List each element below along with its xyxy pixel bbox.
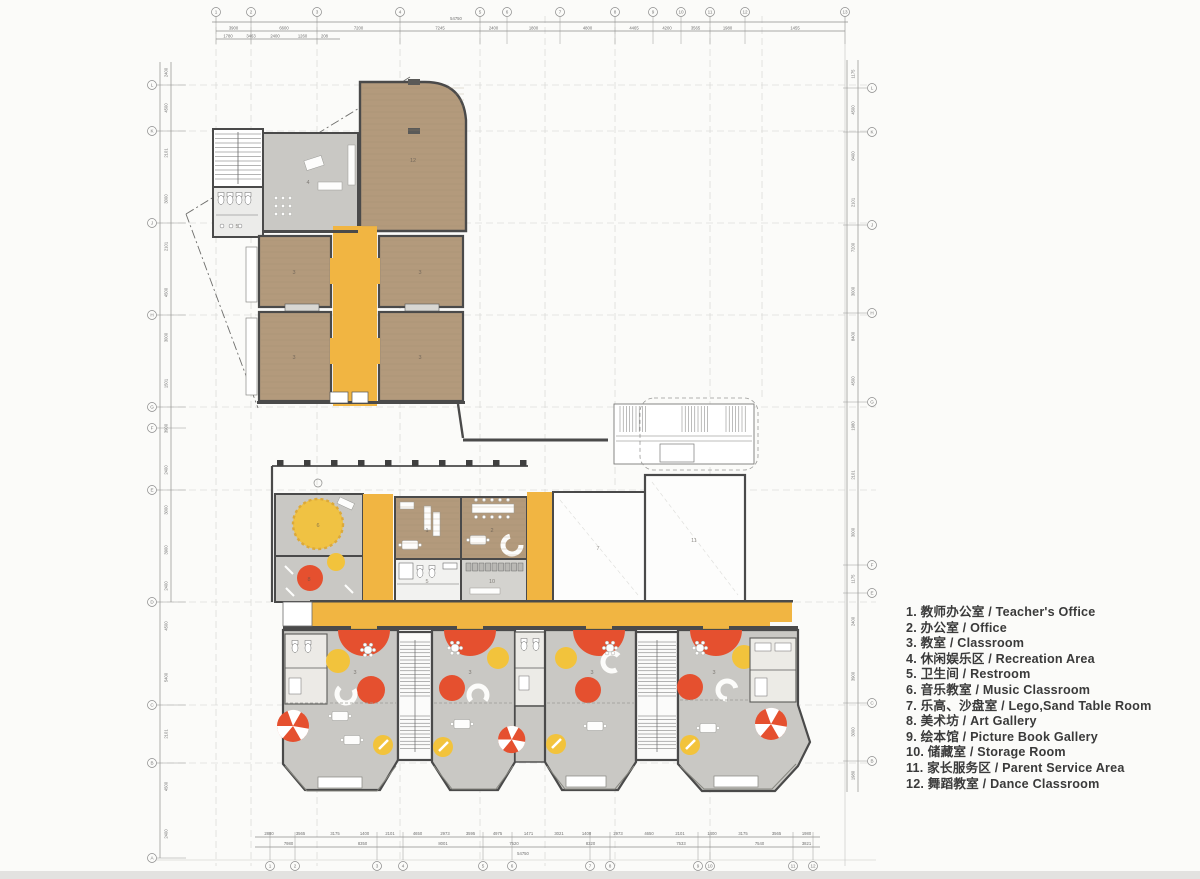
dimension-value: 2400 [270,34,280,39]
dimension-value: 1800 [529,26,539,31]
room-label: 6 [316,523,319,529]
dimension-value: 2400 [851,616,856,626]
dimension-value: 3021 [554,831,564,836]
stairwell-upper [213,129,263,187]
dimension-value: 8001 [438,841,448,846]
dimension-value: 2880 [264,831,274,836]
dimension-value: 2101 [164,148,169,158]
dimension-value: 3175 [330,831,340,836]
dimension-value: 4975 [493,831,503,836]
grid-bubble-label: 13 [842,10,848,15]
legend-item: 11. 家长服务区 / Parent Service Area [906,761,1192,777]
corridor-vertical-2 [527,492,553,602]
dimension-value: 4200 [662,26,672,31]
grid-bubble-label: 11 [708,10,713,15]
dimension-value: 1980 [723,26,733,31]
classroom-unit-d [677,630,810,791]
dimension-value: 8400 [851,331,856,341]
grid-bubble-label: 12 [742,10,748,15]
dimension-value: 1400 [707,831,717,836]
dimension-value: 2400 [164,67,169,77]
dimension-value: 1980 [802,831,812,836]
dimension-value: 2973 [440,831,450,836]
dimension-value: 1980 [851,421,856,431]
grid-bubble-label: 6 [511,864,514,869]
classroom-unit-c [545,630,636,790]
dimension-value: 3900 [164,423,169,433]
dimension-value: 2101 [851,197,856,207]
dimension-value: 1980 [851,770,856,780]
grid-bubble-label: 10 [678,10,684,15]
room-legend: 1. 教师办公室 / Teacher's Office2. 办公室 / Offi… [906,605,1192,792]
legend-item: 4. 休闲娱乐区 / Recreation Area [906,652,1192,668]
dimension-value: 4800 [583,26,593,31]
floor-plan-screenshot: 12 4 5 3 3 3 3 6 8 1 2 5 10 7 11 3 3 3 3… [0,0,1200,879]
grid-bubble-label: 1 [215,10,218,15]
room-label: 8 [307,577,310,583]
dimension-value: 3565 [296,831,306,836]
dimension-value: 1400 [582,831,592,836]
dimension-value: 1501 [164,378,169,388]
grid-bubble-label: 7 [559,10,562,15]
room-label: 1 [425,528,428,534]
legend-item: 9. 绘本馆 / Picture Book Gallery [906,730,1192,746]
dimension-value: 1471 [524,831,534,836]
grid-bubble-label: H [150,313,153,318]
room-label: 3 [292,270,295,276]
dimension-value: 54750 [450,16,462,21]
grid-bubble-label: G [870,400,874,405]
grid-bubble-label: 10 [707,864,713,869]
grid-bubble-label: G [150,405,154,410]
dimension-value: 3565 [691,26,701,31]
grid-bubble-label: J [151,221,153,226]
room-label: 3 [590,670,593,676]
grid-bubble-label: 1 [269,864,272,869]
dimension-value: 4500 [851,105,856,115]
grid-bubble-label: 9 [652,10,655,15]
dimension-value: 1400 [360,831,370,836]
office [461,497,527,559]
dimension-value: 3000 [851,286,856,296]
dimension-value: 1780 [223,34,233,39]
dimension-value: 7520 [509,841,519,846]
grid-bubble-label: F [871,563,874,568]
dimension-value: 2101 [164,729,169,739]
dimension-value: 4500 [851,376,856,386]
grid-bubble-label: 5 [479,10,482,15]
dimension-value: 2400 [489,26,499,31]
dimension-value: 3595 [466,831,476,836]
grid-bubble-label: 5 [482,864,485,869]
dimension-value: 2400 [164,465,169,475]
dimension-value: 7200 [354,26,364,31]
room-label: 5 [235,224,238,230]
room-label: 10 [489,579,495,585]
dimension-value: 4500 [164,287,169,297]
grid-bubble-label: B [150,761,153,766]
room-label: 2 [490,528,493,534]
grid-bubble-label: H [870,311,873,316]
room-label: 3 [353,670,356,676]
dimension-value: 3000 [851,727,856,737]
dimension-value: 3900 [229,26,239,31]
dimension-value: 3000 [164,505,169,515]
grid-bubble-label: L [151,83,154,88]
dimension-value: 3175 [738,831,748,836]
legend-item: 5. 卫生间 / Restroom [906,667,1192,683]
dimension-value: 3900 [851,671,856,681]
bottom-block [277,602,810,791]
dimension-value: 8400 [851,151,856,161]
entrance-stairs [614,398,758,470]
room-label: 4 [306,180,309,186]
grid-bubble-label: 12 [810,864,816,869]
dimension-value: 1260 [298,34,308,39]
recreation-room [263,133,358,232]
room-label: 3 [418,355,421,361]
dimension-value: 3565 [772,831,782,836]
dimension-value: 8350 [358,841,368,846]
grid-bubble-label: 11 [791,864,796,869]
dimension-value: 1455 [790,26,800,31]
room-label: 12 [410,158,416,164]
grid-bubble-label: 2 [294,864,297,869]
room-label: 7 [596,546,599,552]
grid-bubble-label: 6 [506,10,509,15]
grid-bubble-label: 4 [402,864,405,869]
grid-bubble-label: L [871,86,874,91]
corridor-main [310,600,793,628]
grid-bubble-label: 9 [697,864,700,869]
dimension-value: 3000 [164,194,169,204]
dimension-value: 3463 [246,34,256,39]
dimension-value: 4500 [164,103,169,113]
room-label: 11 [691,538,697,544]
grid-bubble-label: B [870,759,873,764]
legend-item: 10. 储藏室 / Storage Room [906,745,1192,761]
dimension-value: 2101 [675,831,685,836]
dimension-value: 7533 [676,841,686,846]
classroom-unit-b [432,630,515,790]
dimension-value: 7980 [284,841,294,846]
legend-item: 1. 教师办公室 / Teacher's Office [906,605,1192,621]
art-room [275,553,363,602]
dimension-value: 4500 [164,781,169,791]
dimension-value: 7540 [755,841,765,846]
dimension-value: 8320 [586,841,596,846]
stairwell-bottom-1 [398,632,432,760]
dimension-value: 3900 [164,545,169,555]
legend-item: 2. 办公室 / Office [906,621,1192,637]
room-label: 3 [712,670,715,676]
dimension-value: 1175 [851,574,856,584]
dimension-value: 2400 [164,829,169,839]
grid-bubble-label: E [870,591,873,596]
room-label: 3 [292,355,295,361]
stairwell-bottom-2 [636,632,678,760]
dimension-value: 2101 [164,241,169,251]
grid-bubble-label: 7 [589,864,592,869]
dimension-value: 1175 [851,69,856,79]
room-label: 3 [418,270,421,276]
grid-bubble-label: 8 [609,864,612,869]
corridor-vertical-1 [363,494,393,602]
connector-walls [458,404,608,440]
legend-item: 3. 教室 / Classroom [906,636,1192,652]
grid-bubble-label: F [151,426,154,431]
dimension-value: 3000 [851,527,856,537]
grid-bubble-label: 8 [614,10,617,15]
dimension-value: 4500 [164,621,169,631]
dimension-value: 208 [321,34,329,39]
legend-item: 6. 音乐教室 / Music Classroom [906,683,1192,699]
grid-bubble-label: 3 [376,864,379,869]
dimension-value: 7200 [851,242,856,252]
dimension-value: 4465 [629,26,639,31]
dimension-value: 2101 [851,470,856,480]
dimension-value: 5400 [164,672,169,682]
dimension-value: 2973 [613,831,623,836]
bottom-edge-strip [0,871,1200,879]
grid-bubble-label: E [150,488,153,493]
grid-bubble-label: 2 [250,10,253,15]
grid-bubble-label: J [871,223,873,228]
dimension-value: 6600 [279,26,289,31]
legend-item: 7. 乐高、沙盘室 / Lego,Sand Table Room [906,699,1192,715]
legend-item: 12. 舞蹈教室 / Dance Classroom [906,777,1192,793]
dimension-value: 54750 [517,851,529,856]
dimension-value: 4650 [644,831,654,836]
grid-bubble-label: 3 [316,10,319,15]
room-label: 5 [425,579,428,585]
room-label: 3 [468,670,471,676]
middle-block [272,460,793,628]
dimension-value: 4650 [413,831,423,836]
dimension-value: 2400 [164,581,169,591]
dimension-value: 2101 [385,831,395,836]
grid-bubble-label: 4 [399,10,402,15]
dimension-value: 7245 [435,26,445,31]
classroom-unit-a [277,630,398,791]
dimension-value: 3821 [802,841,812,846]
dimension-value: 3000 [164,332,169,342]
legend-item: 8. 美术坊 / Art Gallery [906,714,1192,730]
